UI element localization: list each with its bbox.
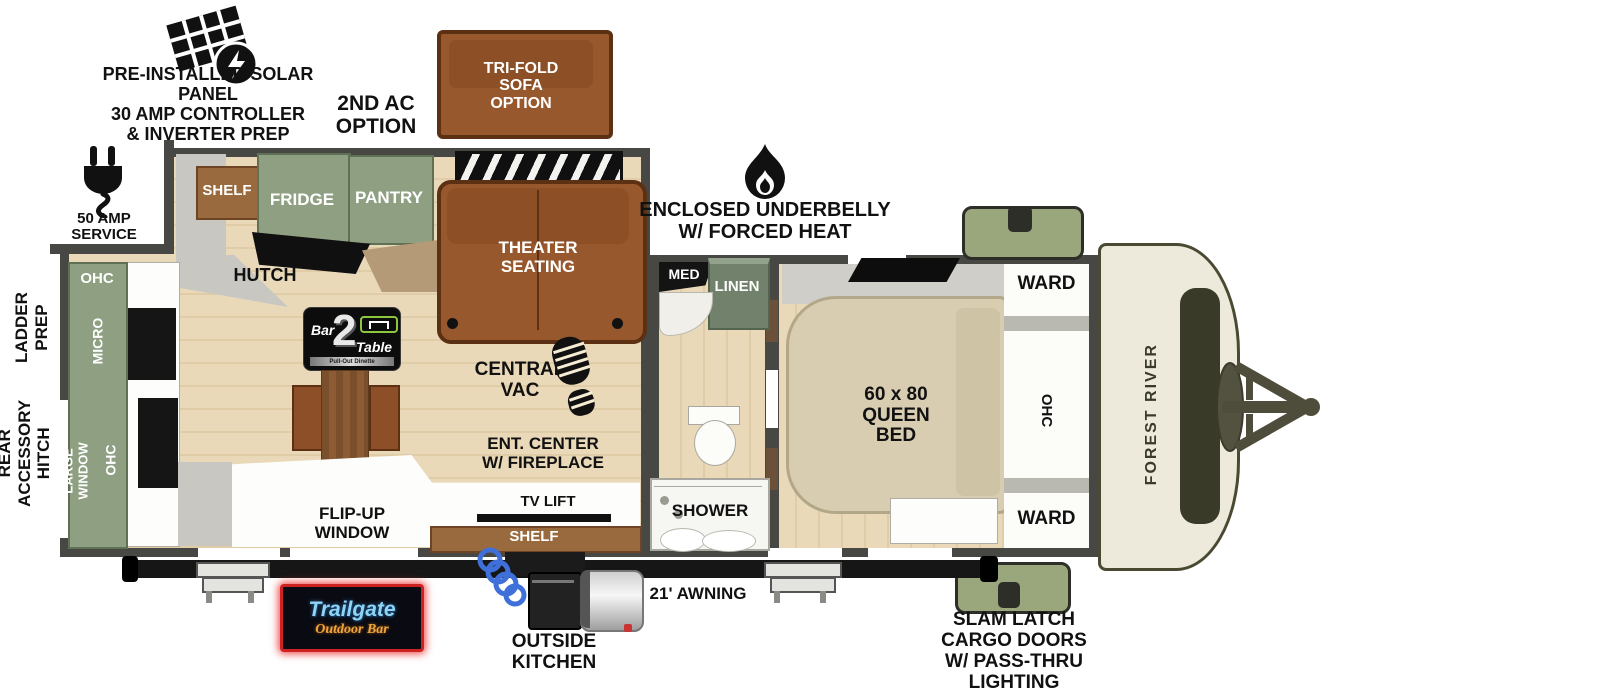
bar2table-tagline: Pull-Out Dinette <box>310 357 394 366</box>
queen-bed-label: 60 x 80 QUEEN BED <box>834 378 958 454</box>
micro-label: MICRO <box>82 302 112 380</box>
fridge-label: FRIDGE <box>257 153 347 247</box>
ent-center-label: ENT. CENTER W/ FIREPLACE <box>478 436 608 472</box>
dinette-bench-left <box>292 385 323 451</box>
ward-top-label: WARD <box>1004 270 1089 298</box>
slam-latch-label: SLAM LATCH CARGO DOORS W/ PASS-THRU LIGH… <box>938 606 1090 697</box>
bed-bench <box>890 498 998 544</box>
awning-label: 21' AWNING <box>646 584 750 604</box>
linen-label: LINEN <box>708 272 766 302</box>
theater-cupholder-left <box>447 318 458 329</box>
step-foot-r1 <box>774 591 780 603</box>
shelf-top-label: SHELF <box>196 166 258 216</box>
tri-fold-sofa-label: TRI-FOLD SOFA OPTION <box>447 52 595 120</box>
shower-glass-fold-1 <box>660 528 706 552</box>
shower-label: SHOWER <box>662 498 758 524</box>
bedroom-window-gap-bottom <box>868 548 952 557</box>
entry-steps-right <box>764 562 842 578</box>
med-label: MED <box>659 262 709 288</box>
ohc-top-label: OHC <box>74 268 120 290</box>
water-tank-ring <box>580 570 590 628</box>
forest-river-wordmark: FOREST RIVER <box>1134 296 1170 532</box>
bar2table-logo: Bar 2 Table Pull-Out Dinette <box>303 307 401 371</box>
entry-door-gap-right <box>768 548 842 557</box>
ladder-prep-label: LADDER PREP <box>6 272 56 384</box>
awning-endcap-left <box>122 556 138 582</box>
theater-cupholder-right <box>612 318 623 329</box>
cooktop <box>126 308 176 380</box>
tv-bar <box>477 514 611 522</box>
griddle-top-line <box>532 580 574 583</box>
underbelly-label: ENCLOSED UNDERBELLY W/ FORCED HEAT <box>636 198 894 244</box>
hutch-label: HUTCH <box>220 264 310 288</box>
tank-valve <box>624 624 632 632</box>
flip-up-window-label: FLIP-UP WINDOW <box>296 502 408 546</box>
bed-pillow-area <box>956 308 1000 496</box>
step-foot-r2 <box>820 591 826 603</box>
shower-glass-fold-2 <box>702 530 756 552</box>
shower-door-track <box>654 486 762 487</box>
second-ac-label: 2ND AC OPTION <box>328 90 424 140</box>
dinette-bench-right <box>369 385 400 451</box>
hth-table-icon <box>369 321 389 329</box>
ohc-bedroom-label: OHC <box>1030 376 1064 444</box>
bar2table-two: 2 <box>332 306 356 356</box>
solar-label: PRE-INSTALLED SOLAR PANEL 30 AMP CONTROL… <box>78 74 338 136</box>
trailgate-sub: Outdoor Bar <box>315 622 389 638</box>
theater-label: THEATER SEATING <box>452 232 624 284</box>
ward-divider-top <box>1004 316 1089 331</box>
flip-window-gap <box>290 548 418 557</box>
floorplan-canvas: OHC MICRO OHC LARGE WINDOW SHELF FRIDGE … <box>0 0 1600 697</box>
power-plug-icon <box>80 146 126 218</box>
flame-icon <box>741 144 789 200</box>
amp50-label: 50 AMP SERVICE <box>44 216 164 238</box>
entryway <box>178 462 232 546</box>
oven <box>138 398 178 488</box>
bar2table-bar: Bar <box>311 322 334 338</box>
tv-lift-label: TV LIFT <box>498 492 598 512</box>
entry-steps-left <box>196 562 270 578</box>
ohc-mid-label: OHC <box>96 430 126 490</box>
trailgate-name: Trailgate <box>308 598 395 622</box>
dinette-table <box>321 370 369 468</box>
step-foot-l2 <box>248 591 254 603</box>
cargo-latch-top <box>1008 206 1032 232</box>
cargo-latch-bottom <box>998 582 1020 608</box>
roof-vent <box>848 258 960 282</box>
step-foot-l1 <box>206 591 212 603</box>
bar2table-table: Table <box>356 339 392 355</box>
hth-badge <box>360 316 398 333</box>
trailgate-sign: Trailgate Outdoor Bar <box>280 584 424 652</box>
outside-kitchen-label: OUTSIDE KITCHEN <box>494 630 614 676</box>
ward-divider-bottom <box>1004 478 1089 493</box>
bedroom-wall-window <box>766 370 778 428</box>
large-window-label: LARGE WINDOW <box>64 400 90 542</box>
awning-endcap-right <box>980 556 998 582</box>
rear-accessory-hitch-label: REAR ACCESSORY HITCH <box>0 378 56 528</box>
boot-print-icon <box>552 334 600 420</box>
pantry-label: PANTRY <box>348 155 430 241</box>
toilet-bowl <box>694 420 736 466</box>
hitch-assembly <box>1216 346 1320 468</box>
front-cap-window <box>1180 288 1220 524</box>
ward-bottom-label: WARD <box>1004 505 1089 533</box>
entry-door-gap-left <box>198 548 280 557</box>
